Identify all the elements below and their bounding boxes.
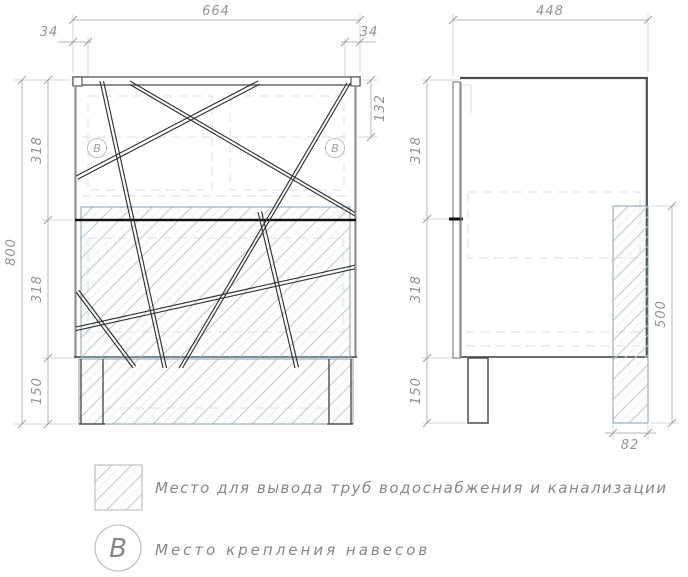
dim-pipe-zone-depth-label: 82: [621, 438, 640, 453]
dim-offset-right-label: 34: [360, 25, 379, 40]
side-inner-step: [461, 85, 471, 113]
dim-offset-left-label: 34: [40, 25, 59, 40]
legend-hanger-marker-letter: B: [109, 534, 127, 564]
pipe-zone-bottom: [79, 359, 353, 424]
dim-side-section-mid-label: 318: [409, 275, 424, 303]
pipe-zone-front: [81, 207, 350, 357]
countertop-cap-right: [351, 77, 360, 86]
front-view: B B 664 34 34 132 800 318 318 150: [4, 4, 388, 428]
side-leg: [468, 358, 488, 423]
legend-hanger-label: Место крепления навесов: [155, 541, 430, 559]
hanger-markers: B B: [88, 139, 345, 158]
legend-pipe-zone-label: Место для вывода труб водоснабжения и ка…: [155, 479, 668, 497]
dim-side-legs-label: 150: [409, 377, 424, 405]
dim-front-legs-label: 150: [30, 377, 45, 405]
dim-front-section-mid-label: 318: [30, 275, 45, 303]
dim-pipe-zone-height-label: 500: [654, 300, 669, 328]
countertop-cap-left: [73, 77, 82, 86]
dim-side-section-top-label: 318: [409, 136, 424, 164]
legend: Место для вывода труб водоснабжения и ка…: [95, 465, 668, 571]
legend-hatch-swatch: [95, 465, 142, 510]
side-view: 448 318 318 150 500 82: [409, 4, 678, 453]
dim-front-section-top-label: 318: [30, 136, 45, 164]
dim-depth-total-label: 448: [536, 4, 564, 19]
drawing-canvas: B B 664 34 34 132 800 318 318 150: [0, 0, 688, 577]
dim-width-total-label: 664: [202, 4, 230, 19]
dim-hanger-drop-label: 132: [373, 94, 388, 122]
hanger-marker-letter-right: B: [331, 142, 339, 155]
vanity-technical-drawing: B B 664 34 34 132 800 318 318 150: [0, 0, 688, 577]
dim-height-total-label: 800: [4, 238, 19, 266]
pipe-zone-side: [613, 206, 648, 423]
hanger-marker-letter-left: B: [93, 142, 101, 155]
countertop: [73, 77, 360, 85]
